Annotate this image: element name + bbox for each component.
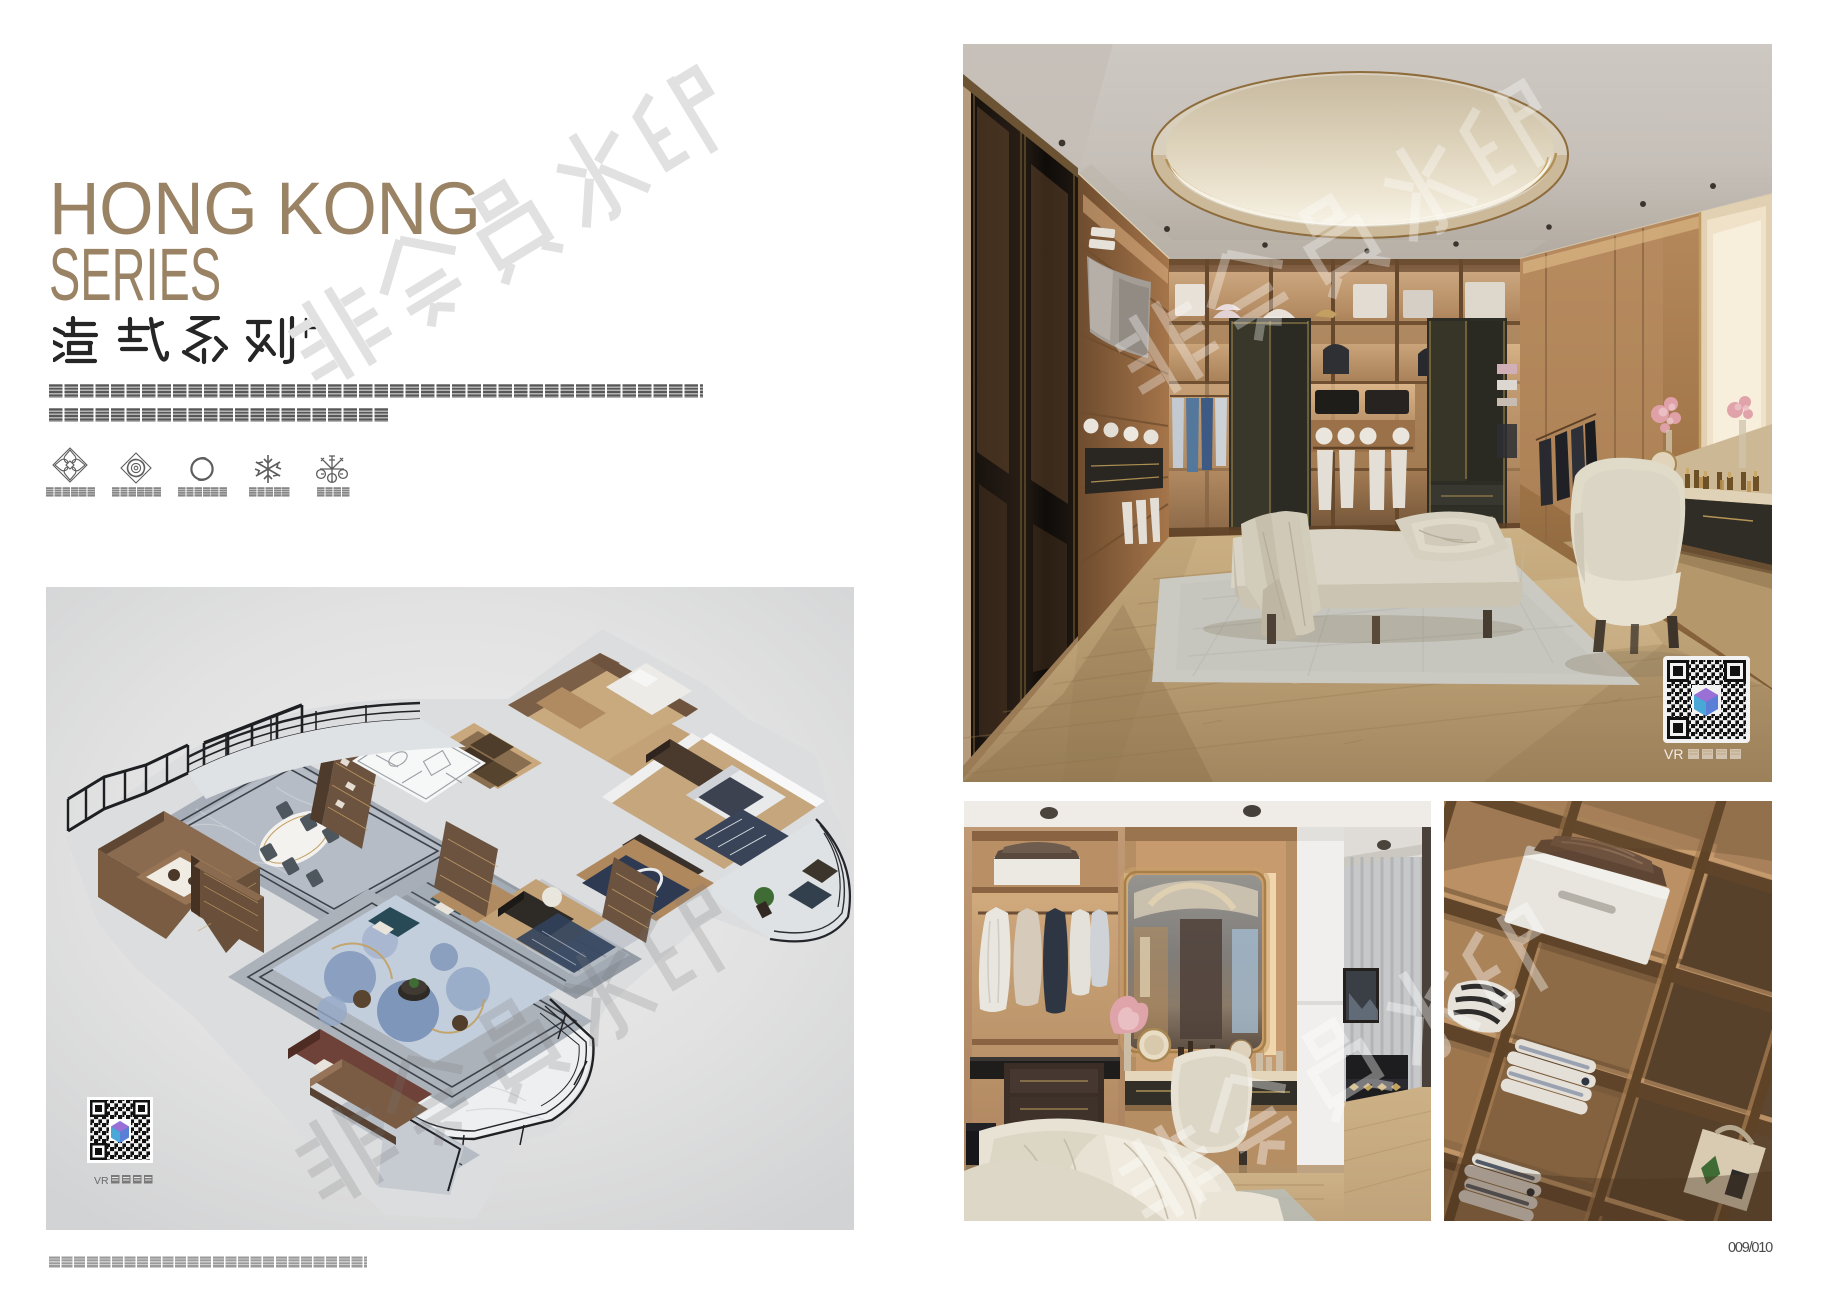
svg-text:VR: VR <box>1664 746 1683 762</box>
svg-text:VR: VR <box>94 1175 109 1187</box>
